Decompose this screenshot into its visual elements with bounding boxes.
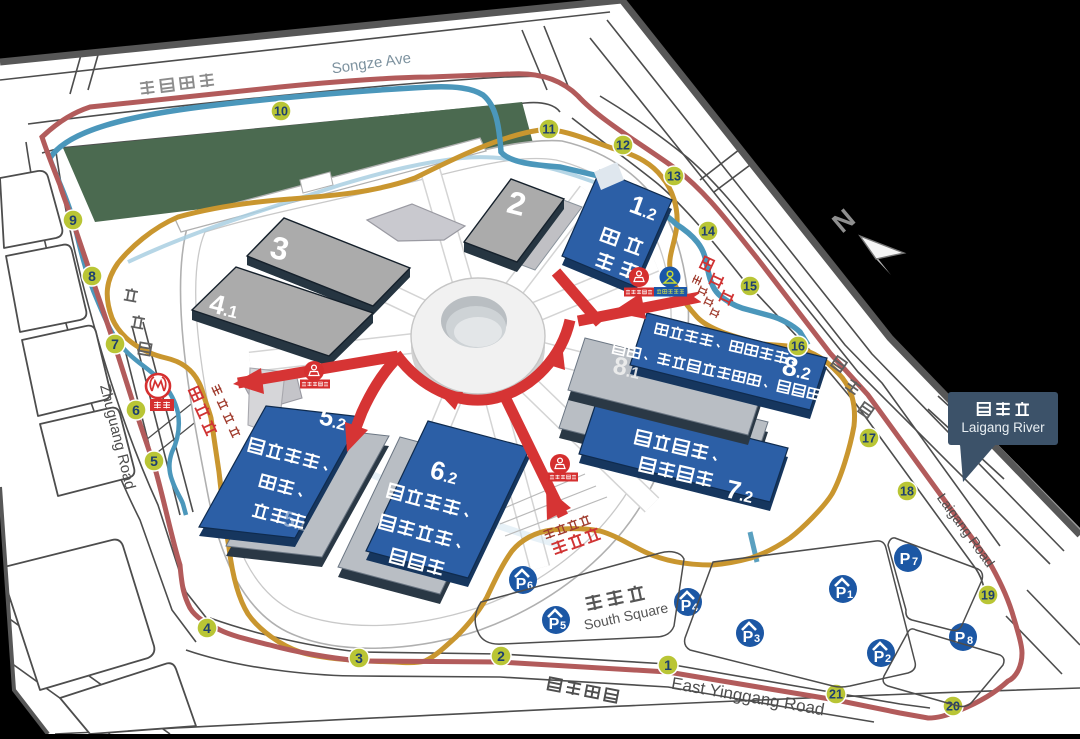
- svg-text:3: 3: [355, 650, 363, 666]
- svg-text:3: 3: [754, 633, 760, 645]
- svg-text:21: 21: [829, 688, 843, 702]
- svg-text:19: 19: [981, 589, 995, 603]
- svg-text:7: 7: [912, 556, 918, 568]
- svg-text:9: 9: [69, 212, 77, 228]
- svg-text:18: 18: [900, 485, 914, 499]
- svg-text:13: 13: [667, 170, 681, 184]
- svg-text:17: 17: [862, 432, 876, 446]
- svg-text:14: 14: [701, 225, 715, 239]
- svg-text:4: 4: [203, 620, 211, 636]
- svg-text:2: 2: [497, 648, 505, 664]
- svg-text:P: P: [874, 649, 885, 666]
- svg-text:7: 7: [111, 336, 119, 352]
- svg-text:16: 16: [791, 340, 805, 354]
- svg-text:P: P: [836, 585, 847, 602]
- svg-text:8: 8: [88, 268, 96, 284]
- svg-text:Laigang River: Laigang River: [961, 420, 1045, 435]
- svg-text:5: 5: [150, 453, 158, 469]
- svg-text:6: 6: [132, 402, 140, 418]
- svg-text:6: 6: [527, 580, 533, 592]
- svg-text:1: 1: [847, 589, 853, 601]
- svg-text:P: P: [549, 616, 560, 633]
- svg-text:P: P: [900, 551, 911, 568]
- svg-text:10: 10: [274, 105, 288, 119]
- svg-text:11: 11: [542, 123, 555, 137]
- svg-text:1: 1: [664, 657, 672, 673]
- svg-text:5: 5: [560, 620, 566, 632]
- svg-text:15: 15: [743, 280, 757, 294]
- svg-text:P: P: [743, 629, 754, 646]
- svg-text:P: P: [681, 598, 692, 615]
- svg-text:12: 12: [616, 139, 630, 153]
